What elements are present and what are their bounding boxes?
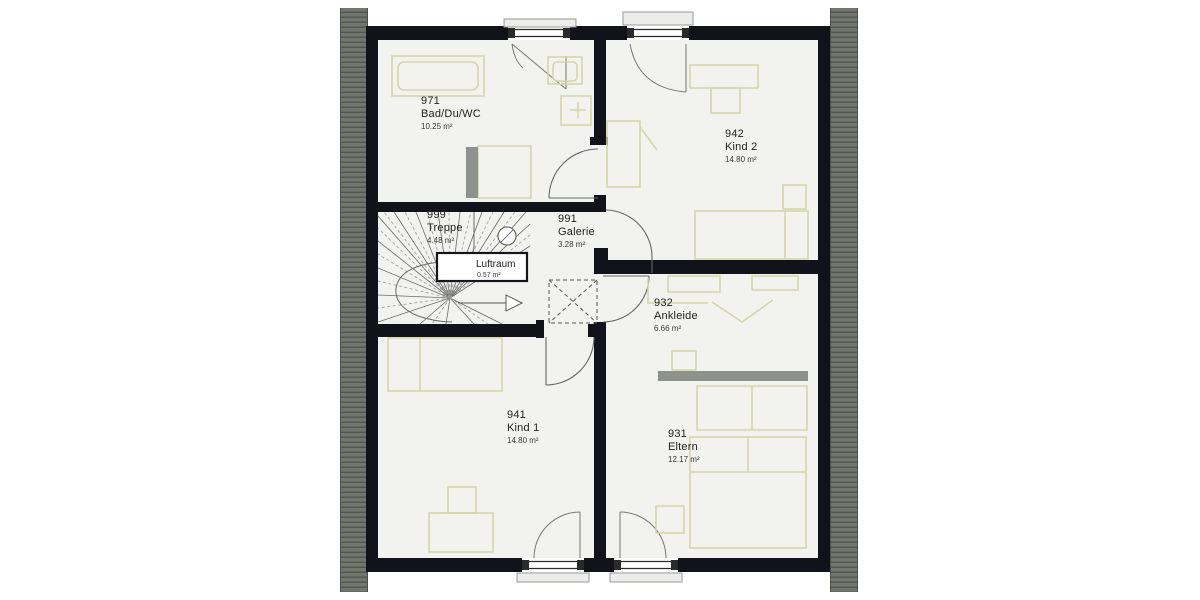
room-number: 991 [558,213,595,226]
room-area: 12.17 m² [668,455,700,465]
room-name: Galerie [558,226,595,239]
room-area: 14.80 m² [725,155,757,165]
room-number: 971 [421,95,481,108]
room-label-treppe: 999 Treppe 4.48 m² [427,209,463,246]
room-area: 14.80 m² [507,436,539,446]
room-name: Kind 1 [507,422,539,435]
room-area: 10.25 m² [421,122,481,132]
room-area: 3.28 m² [558,240,595,250]
room-label-ankleide: 932 Ankleide 6.66 m² [654,297,698,334]
room-number: 999 [427,209,463,222]
wardrobe-bar [658,371,808,381]
floor-plan-drawing [0,0,1200,600]
room-name: Ankleide [654,310,698,323]
room-name: Eltern [668,441,700,454]
shower-partition [466,147,478,198]
room-label-kind2: 942 Kind 2 14.80 m² [725,128,757,165]
room-number: 941 [507,409,539,422]
room-label-galerie: 991 Galerie 3.28 m² [558,213,595,250]
room-label-bad: 971 Bad/Du/WC 10.25 m² [421,95,481,132]
room-number: 932 [654,297,698,310]
luftraum-area: 0.57 m² [477,272,501,280]
floor-plan-canvas: 971 Bad/Du/WC 10.25 m² 942 Kind 2 14.80 … [0,0,1200,600]
room-number: 942 [725,128,757,141]
room-label-eltern: 931 Eltern 12.17 m² [668,428,700,465]
room-name: Treppe [427,222,463,235]
room-area: 6.66 m² [654,324,698,334]
room-name: Kind 2 [725,141,757,154]
room-number: 931 [668,428,700,441]
luftraum-label: Luftraum [476,259,515,271]
room-label-kind1: 941 Kind 1 14.80 m² [507,409,539,446]
room-name: Bad/Du/WC [421,108,481,121]
room-area: 4.48 m² [427,236,463,246]
